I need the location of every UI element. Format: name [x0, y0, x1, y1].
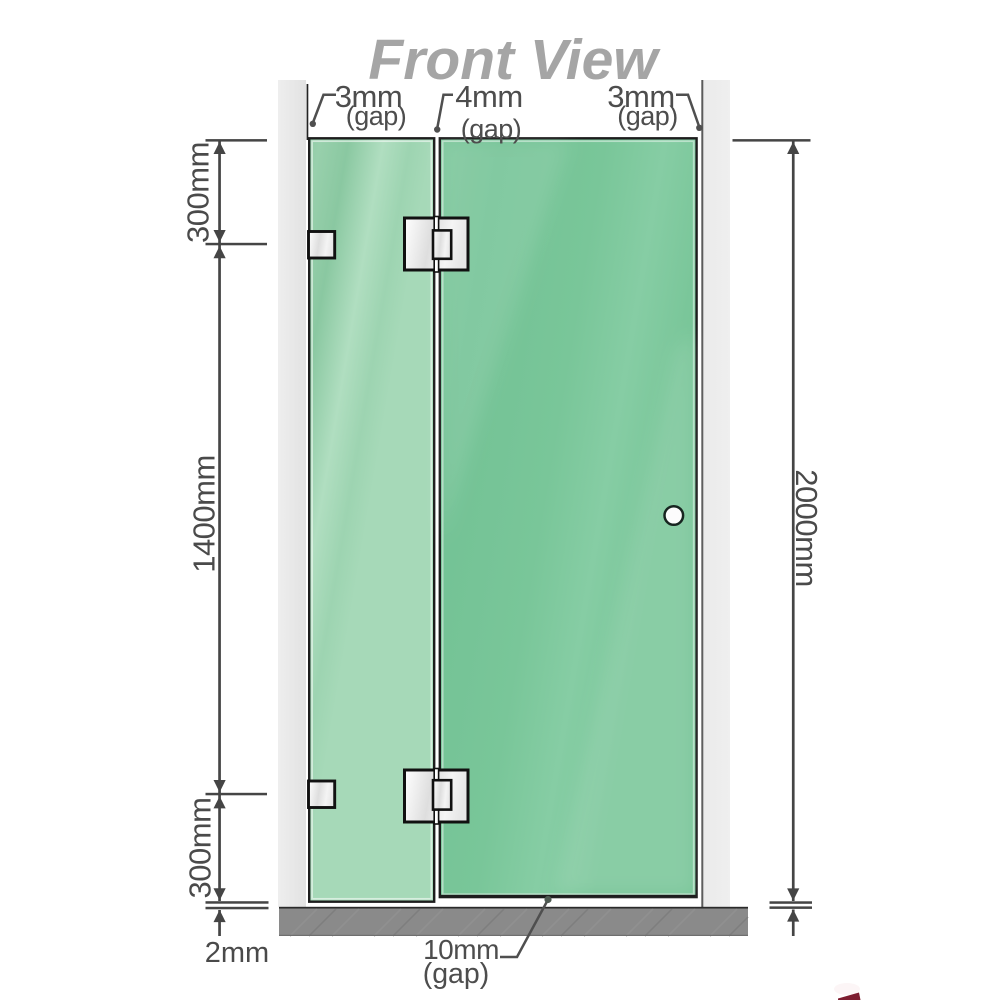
svg-text:(gap): (gap) [617, 101, 678, 131]
svg-text:4mm: 4mm [455, 79, 522, 114]
svg-text:(gap): (gap) [423, 958, 490, 990]
svg-text:1400mm: 1400mm [187, 455, 222, 573]
svg-text:300mm: 300mm [181, 142, 216, 243]
svg-text:2000mm: 2000mm [789, 469, 824, 587]
svg-text:2mm: 2mm [205, 937, 269, 969]
svg-text:(gap): (gap) [461, 114, 522, 144]
svg-text:(gap): (gap) [346, 101, 407, 131]
svg-text:300mm: 300mm [183, 798, 218, 899]
